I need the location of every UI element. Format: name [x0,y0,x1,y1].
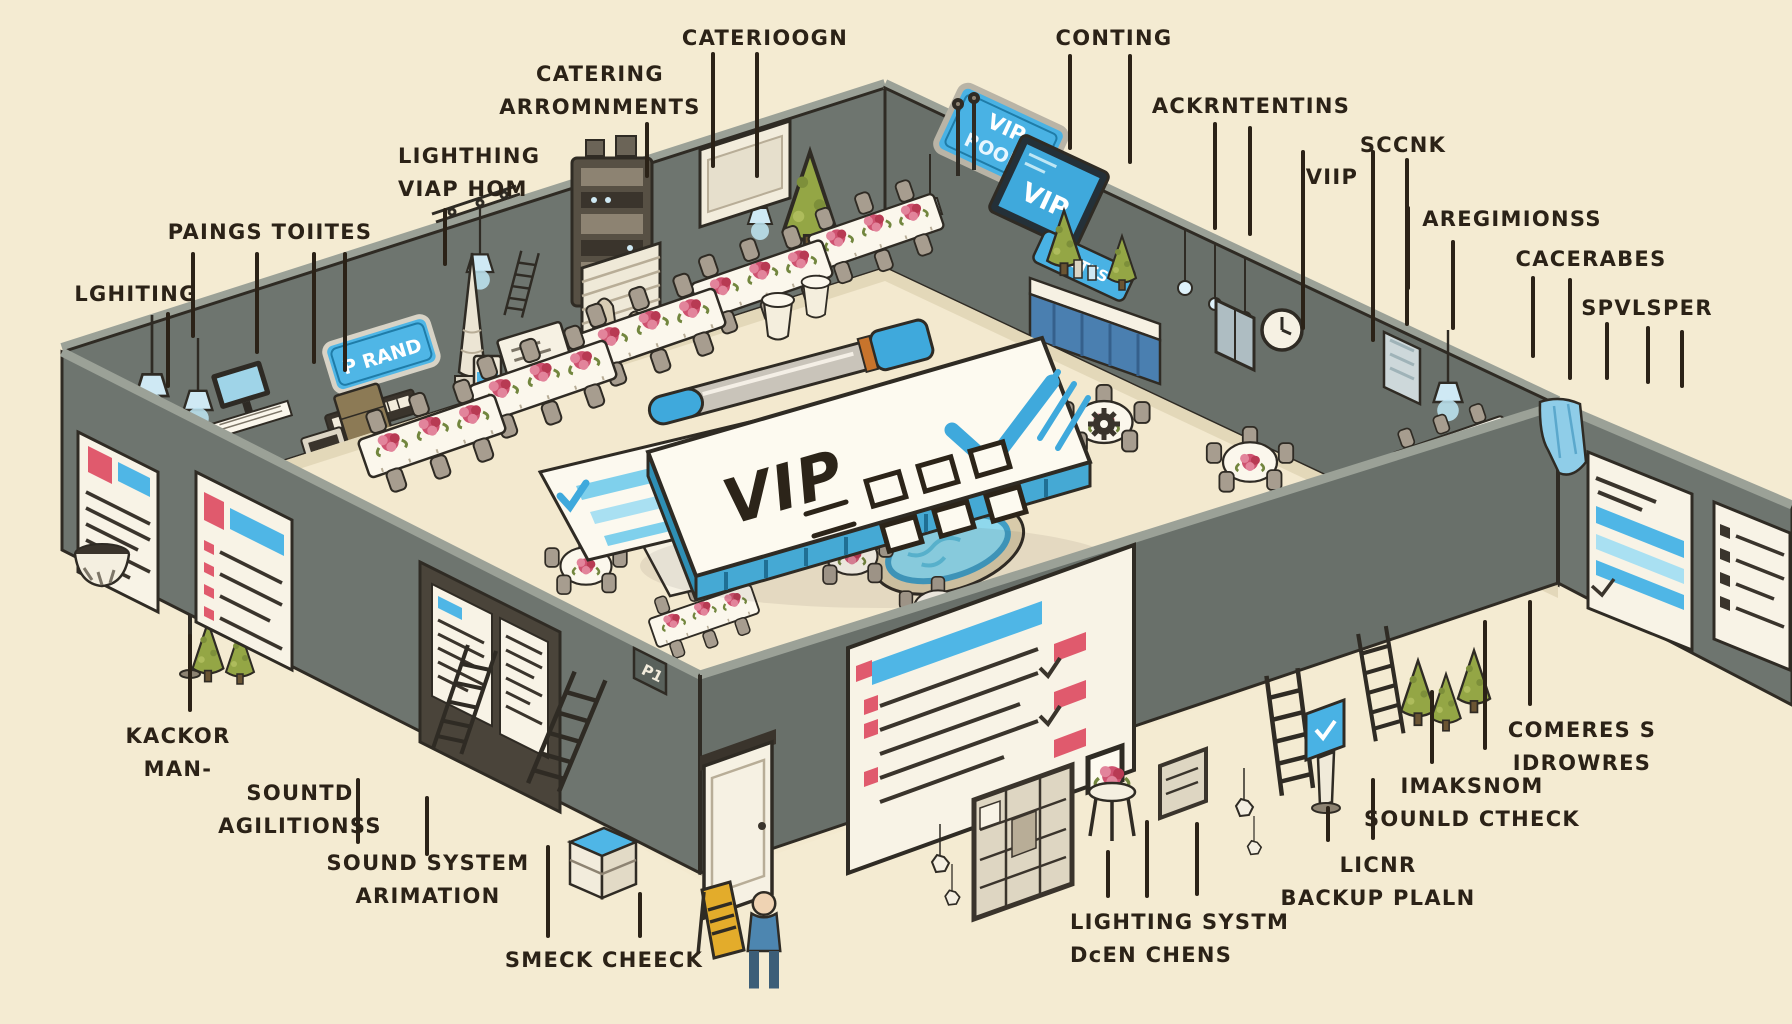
right-tree [1431,674,1460,731]
schematic-board-small [1160,749,1206,818]
venue-illustration: P RAND [0,0,1792,1024]
right-tree [1458,650,1490,712]
shipping-crate [570,828,636,898]
wall-clock [1262,310,1302,350]
hanging-lantern [1248,816,1262,854]
right-tree [1401,660,1435,725]
walking-person [748,892,781,988]
hanging-lantern [1236,768,1253,816]
kiosk-stand [1306,700,1344,813]
hanging-lantern [945,864,959,905]
isometric-venue-scene: P RAND [0,0,1792,1024]
wing-poster-2 [1714,502,1790,670]
